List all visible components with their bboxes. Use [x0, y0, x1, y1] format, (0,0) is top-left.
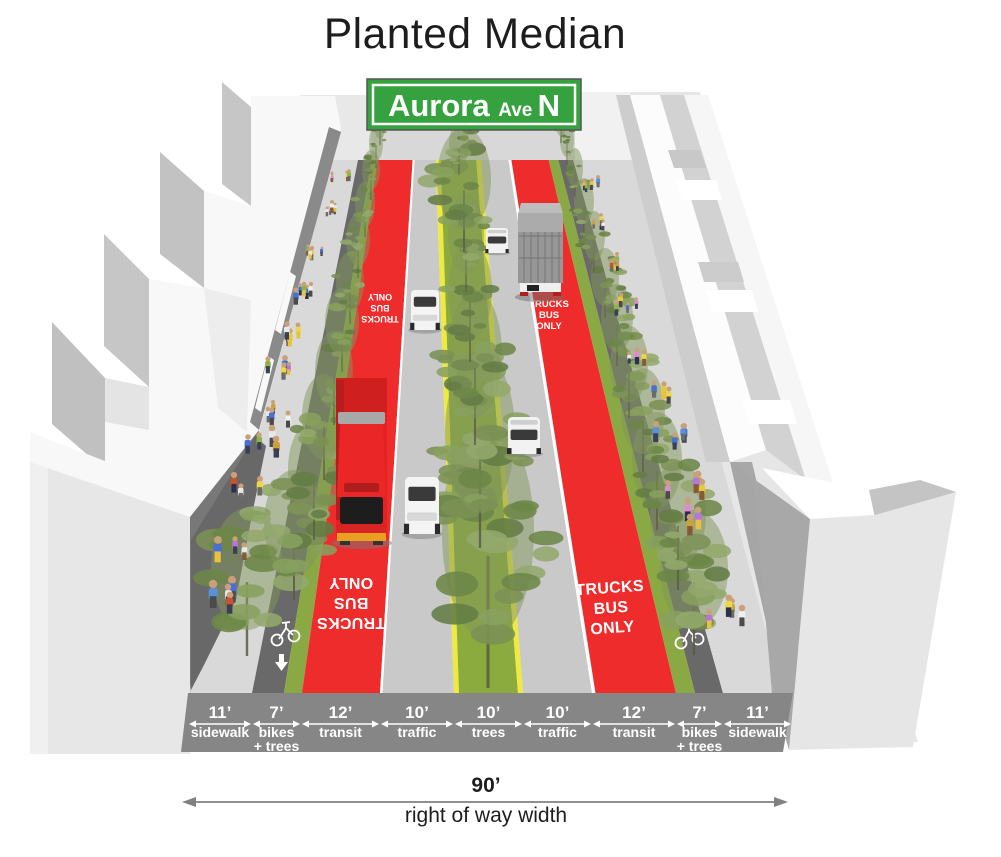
- svg-text:+ trees: + trees: [677, 738, 723, 754]
- svg-text:12’: 12’: [329, 703, 353, 722]
- svg-text:11’: 11’: [209, 703, 232, 722]
- svg-text:90’: 90’: [471, 774, 500, 797]
- svg-text:transit: transit: [613, 724, 656, 740]
- svg-text:+ trees: + trees: [254, 738, 300, 754]
- svg-text:10’: 10’: [405, 703, 429, 722]
- svg-text:10’: 10’: [477, 703, 501, 722]
- svg-text:sidewalk: sidewalk: [191, 724, 250, 740]
- svg-text:12’: 12’: [622, 703, 646, 722]
- svg-text:transit: transit: [319, 724, 362, 740]
- svg-text:trees: trees: [472, 724, 506, 740]
- svg-text:10’: 10’: [546, 703, 570, 722]
- svg-text:traffic: traffic: [398, 724, 437, 740]
- svg-text:7’: 7’: [692, 703, 706, 722]
- svg-text:sidewalk: sidewalk: [728, 724, 787, 740]
- svg-text:traffic: traffic: [538, 724, 577, 740]
- svg-text:7’: 7’: [269, 703, 283, 722]
- svg-text:Planted Median: Planted Median: [324, 11, 626, 58]
- svg-text:11’: 11’: [746, 703, 769, 722]
- svg-text:right of way width: right of way width: [405, 804, 567, 827]
